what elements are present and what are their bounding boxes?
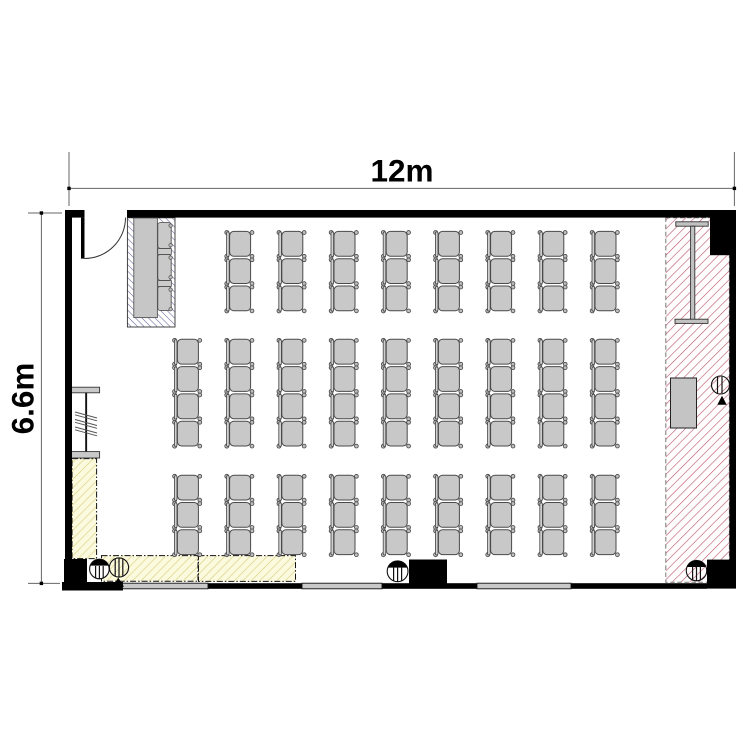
svg-text:12m: 12m: [370, 153, 433, 189]
svg-text:6.6m: 6.6m: [5, 363, 41, 435]
